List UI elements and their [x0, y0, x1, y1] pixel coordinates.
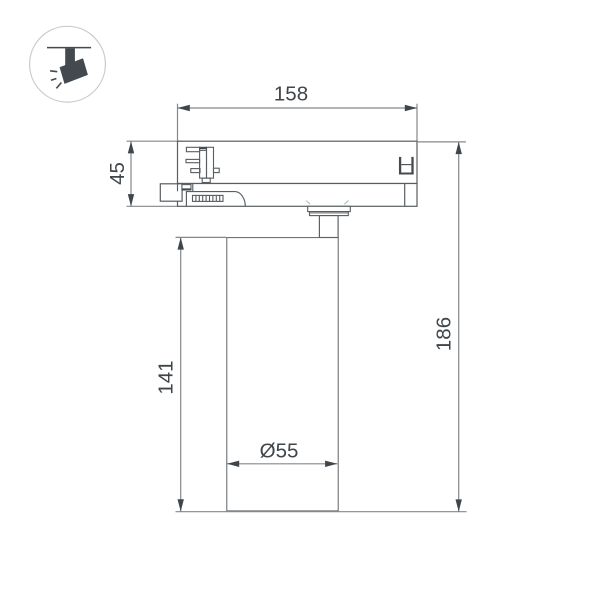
svg-text:Ø55: Ø55: [260, 440, 299, 463]
svg-text:45: 45: [106, 162, 129, 185]
svg-text:141: 141: [155, 360, 178, 394]
svg-text:186: 186: [433, 317, 456, 351]
svg-text:158: 158: [274, 83, 308, 106]
